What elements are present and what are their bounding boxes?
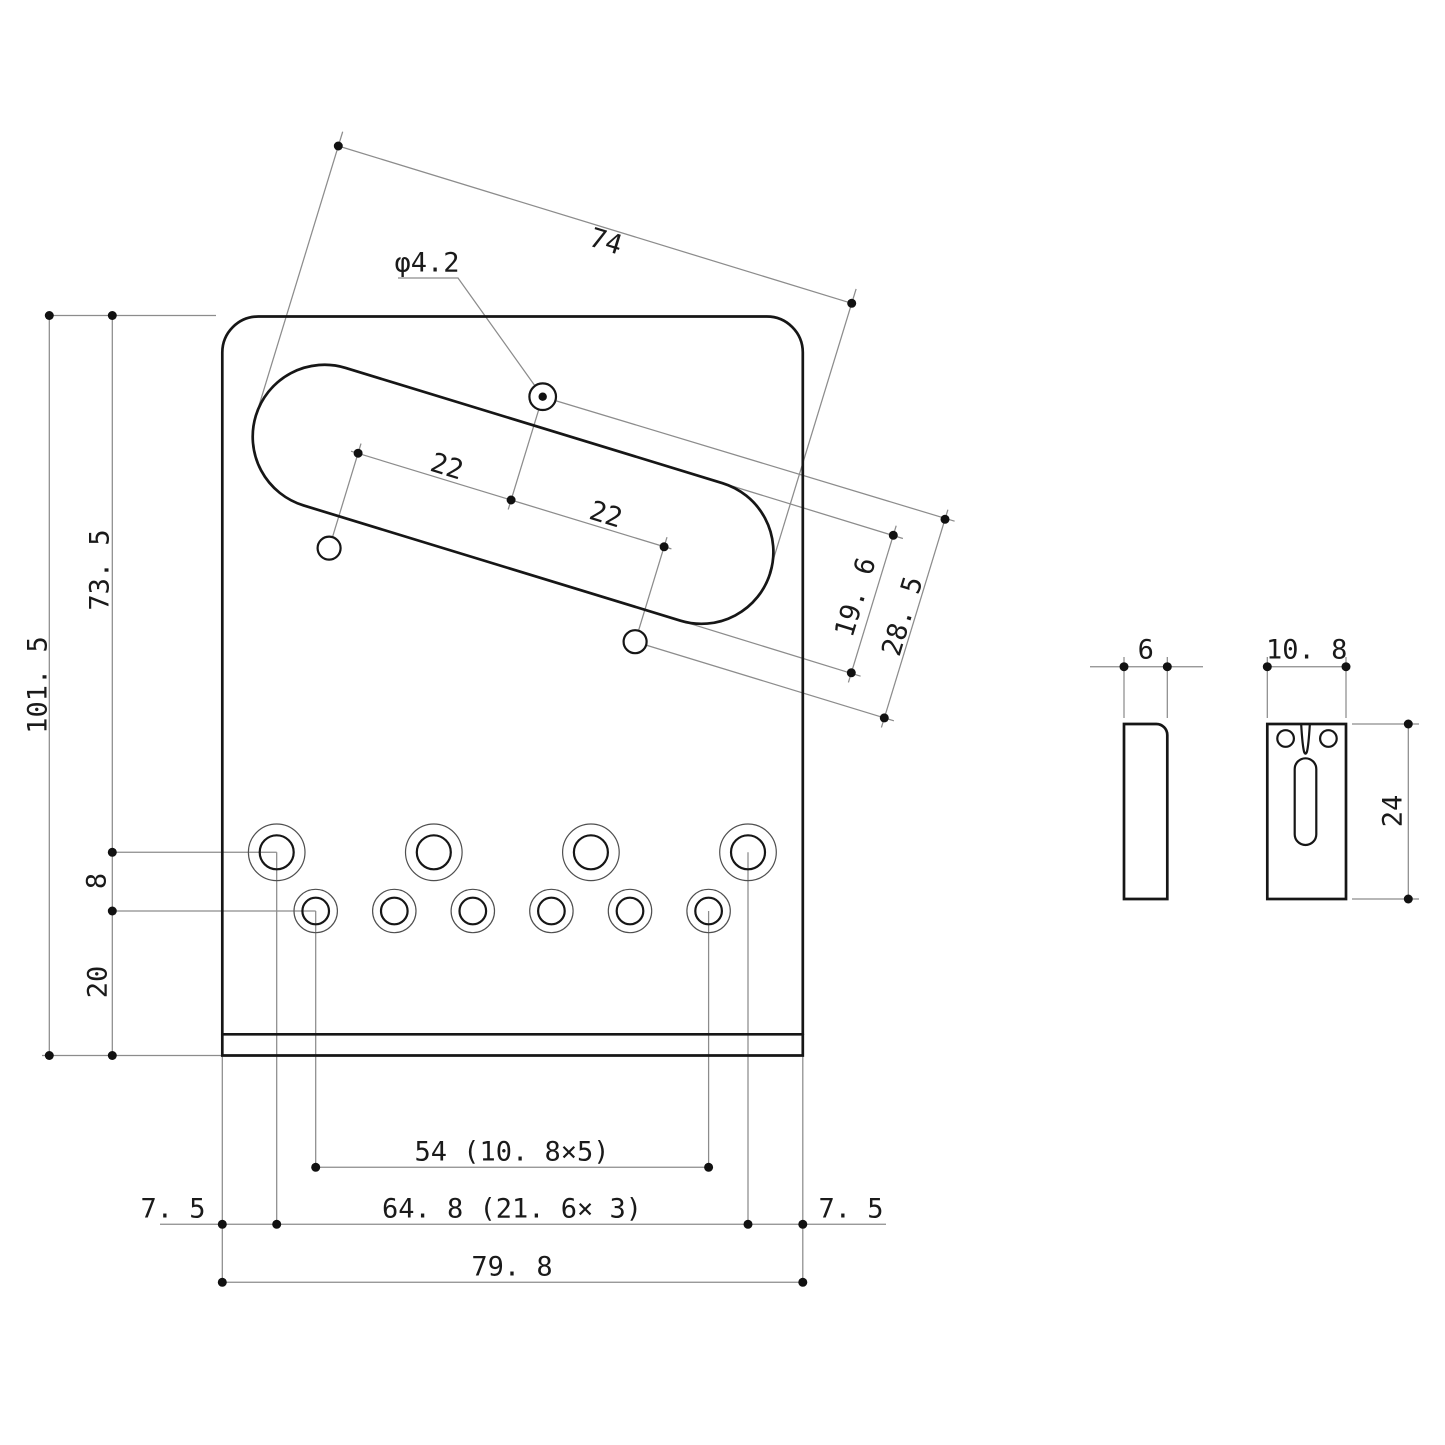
dim-label-overall-height: 101. 5: [22, 636, 53, 734]
saddle-string-groove: [1301, 725, 1310, 754]
plate-outline: [222, 317, 803, 1056]
mount-screw-holes: [248, 824, 776, 881]
bridge-plate-main-view: [222, 317, 803, 1056]
dim-label-screw-to-string-row: 8: [81, 873, 112, 889]
dim-label-screw-row-offset: 28. 5: [876, 573, 929, 660]
dimension-labels: 74 φ4.2 22 22 19. 6 28. 5 101. 5 73. 5 8…: [22, 222, 1408, 1282]
saddle-screw-hole-right: [1320, 730, 1337, 747]
dimension-lines: [42, 132, 1419, 1283]
bridge-plate-technical-drawing: 74 φ4.2 22 22 19. 6 28. 5 101. 5 73. 5 8…: [0, 0, 1445, 1445]
saddle-intonation-slot: [1295, 758, 1317, 845]
dim-label-string-hole-span: 54 (10. 8×5): [414, 1136, 609, 1167]
saddle-side-outline: [1124, 724, 1167, 899]
pickup-screw-hole-right: [624, 630, 647, 653]
dim-label-center-hole-diameter: φ4.2: [394, 247, 459, 278]
dim-label-string-row-to-bottom: 20: [82, 966, 113, 999]
dim-label-center-to-right-screw: 22: [586, 495, 626, 534]
pickup-screw-hole-left: [318, 537, 341, 560]
dim-label-slot-length: 74: [586, 222, 626, 261]
saddle-side-view: [1124, 724, 1167, 899]
dim-label-saddle-width: 10. 8: [1266, 634, 1347, 665]
technical-drawing-page: 74 φ4.2 22 22 19. 6 28. 5 101. 5 73. 5 8…: [0, 0, 1445, 1445]
dim-label-saddle-thickness: 6: [1138, 634, 1154, 665]
dim-label-saddle-length: 24: [1377, 795, 1408, 828]
dim-label-center-to-left-screw: 22: [427, 447, 467, 486]
dim-label-left-margin: 7. 5: [140, 1193, 205, 1224]
saddle-screw-hole-left: [1277, 730, 1294, 747]
dim-label-right-margin: 7. 5: [818, 1193, 883, 1224]
dimension-dots: [45, 142, 1413, 1287]
dim-label-top-to-screw-row: 73. 5: [84, 529, 115, 610]
dim-label-overall-width: 79. 8: [471, 1251, 552, 1282]
string-holes: [294, 889, 730, 932]
saddle-top-view: [1267, 724, 1346, 899]
dim-label-mount-screw-span: 64. 8 (21. 6× 3): [382, 1193, 642, 1224]
